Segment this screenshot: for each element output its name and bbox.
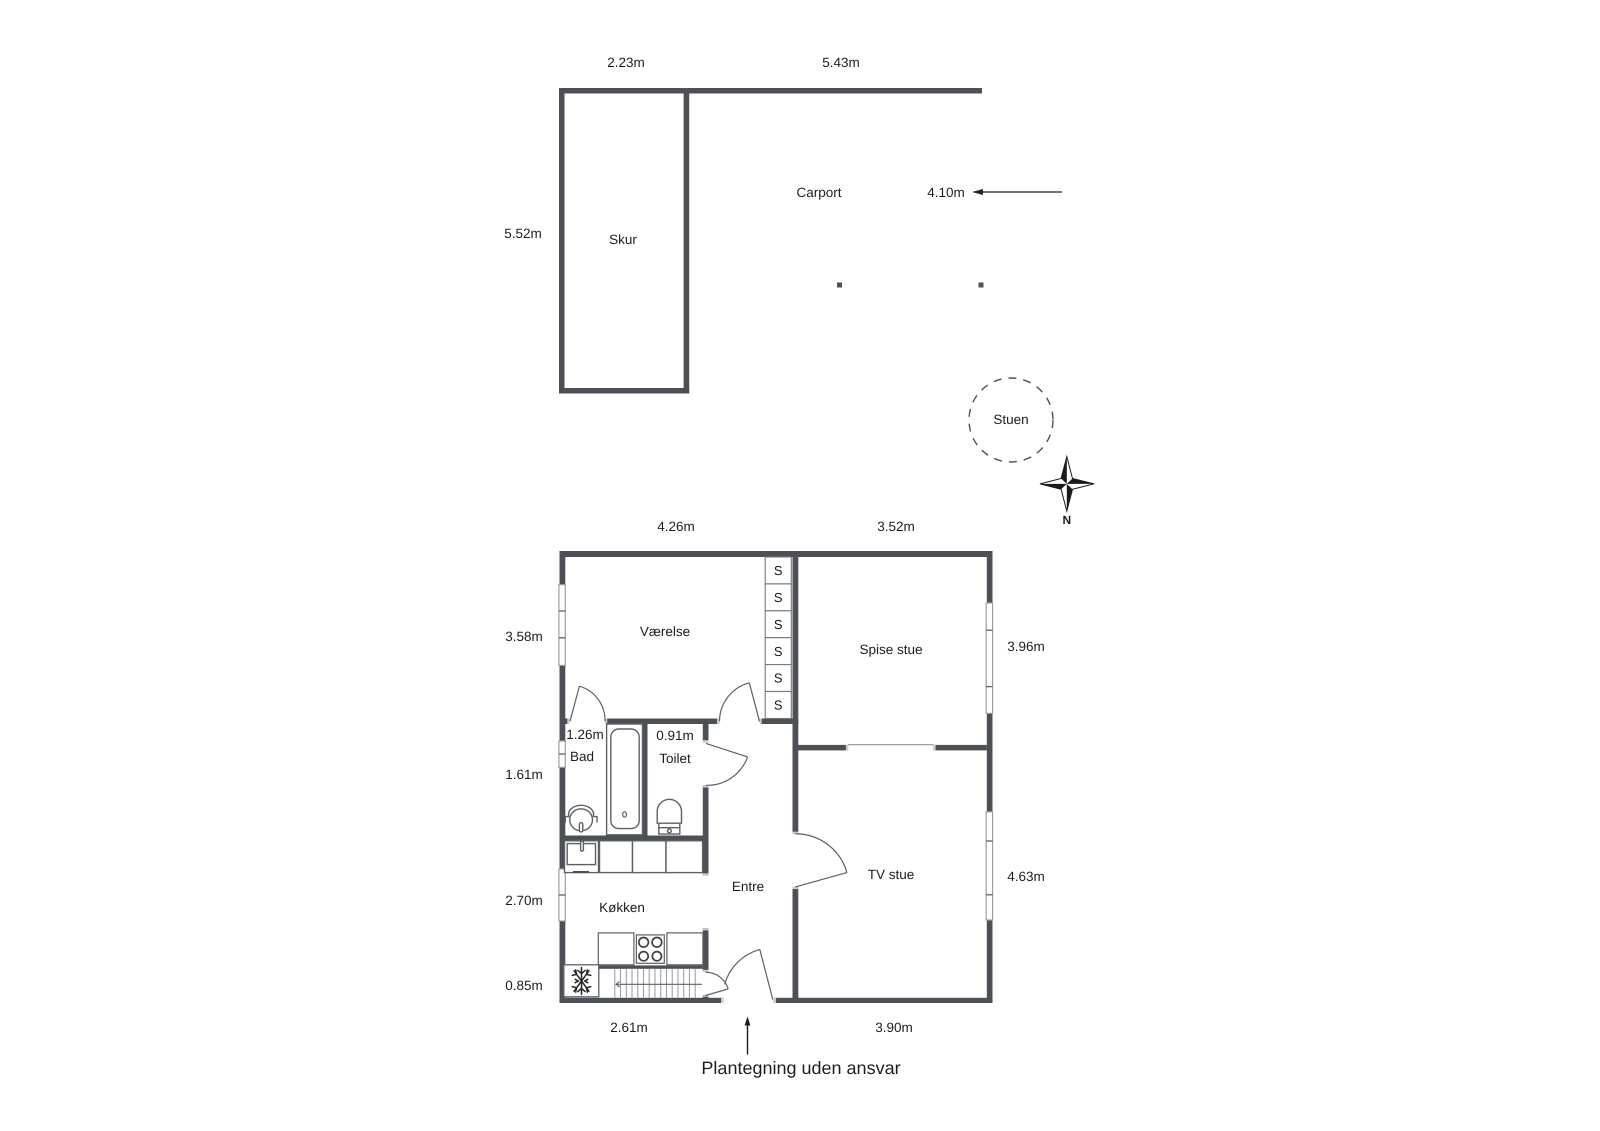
svg-text:S: S [774, 563, 783, 578]
svg-text:N: N [1062, 513, 1071, 527]
svg-text:Stuen: Stuen [993, 412, 1028, 427]
svg-text:5.43m: 5.43m [822, 55, 860, 70]
svg-text:1.61m: 1.61m [505, 767, 543, 782]
svg-text:S: S [774, 644, 783, 659]
svg-text:Skur: Skur [609, 232, 637, 247]
svg-text:4.63m: 4.63m [1007, 869, 1045, 884]
svg-text:0.85m: 0.85m [505, 978, 543, 993]
svg-text:1.26m: 1.26m [566, 727, 604, 742]
svg-text:Køkken: Køkken [599, 900, 645, 915]
svg-text:4.26m: 4.26m [657, 519, 695, 534]
svg-text:Plantegning uden ansvar: Plantegning uden ansvar [701, 1058, 900, 1078]
svg-text:3.90m: 3.90m [875, 1020, 913, 1035]
svg-text:S: S [774, 671, 783, 686]
svg-text:2.70m: 2.70m [505, 893, 543, 908]
svg-text:TV stue: TV stue [868, 867, 915, 882]
svg-text:S: S [774, 590, 783, 605]
svg-text:Spise stue: Spise stue [859, 642, 922, 657]
svg-text:0.91m: 0.91m [656, 728, 694, 743]
svg-text:3.96m: 3.96m [1007, 639, 1045, 654]
svg-text:3.52m: 3.52m [877, 519, 915, 534]
svg-text:2.61m: 2.61m [610, 1020, 648, 1035]
svg-text:Værelse: Værelse [640, 624, 690, 639]
svg-text:S: S [774, 698, 783, 713]
svg-text:3.58m: 3.58m [505, 629, 543, 644]
svg-text:S: S [774, 617, 783, 632]
svg-text:Entre: Entre [732, 879, 764, 894]
svg-text:Toilet: Toilet [659, 751, 691, 766]
svg-text:4.10m: 4.10m [927, 185, 965, 200]
svg-text:2.23m: 2.23m [607, 55, 645, 70]
svg-text:Bad: Bad [570, 749, 594, 764]
svg-text:5.52m: 5.52m [504, 226, 542, 241]
svg-text:Carport: Carport [796, 185, 841, 200]
